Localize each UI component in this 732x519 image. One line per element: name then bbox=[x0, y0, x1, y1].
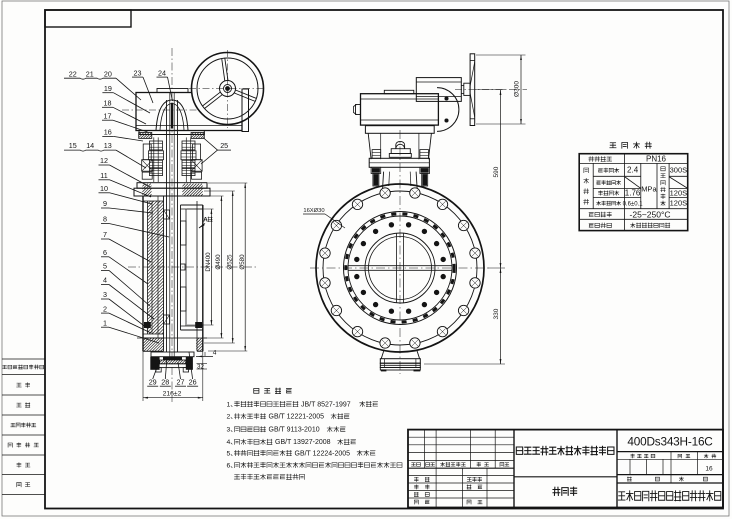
svg-text:16: 16 bbox=[705, 465, 713, 472]
svg-text:400Ds343H-16C: 400Ds343H-16C bbox=[627, 435, 713, 449]
svg-text:1、: 1、 bbox=[227, 401, 238, 408]
svg-text:Ø300: Ø300 bbox=[513, 81, 520, 97]
svg-text:0.6±0.1: 0.6±0.1 bbox=[623, 201, 644, 207]
svg-text:15: 15 bbox=[69, 141, 77, 150]
svg-text:590: 590 bbox=[493, 166, 500, 177]
svg-text:9: 9 bbox=[103, 199, 107, 208]
svg-text:25: 25 bbox=[220, 141, 228, 150]
svg-text:300S: 300S bbox=[670, 166, 688, 175]
svg-text:DN400: DN400 bbox=[205, 252, 212, 272]
svg-text:4: 4 bbox=[213, 350, 217, 357]
svg-text:A: A bbox=[203, 217, 208, 224]
svg-text:GB/T 13927-2008: GB/T 13927-2008 bbox=[275, 439, 331, 446]
svg-text:216±2: 216±2 bbox=[163, 390, 182, 397]
svg-text:13: 13 bbox=[104, 141, 112, 150]
svg-text:Ø525: Ø525 bbox=[227, 254, 234, 270]
svg-text:MPa: MPa bbox=[641, 185, 657, 194]
svg-text:2: 2 bbox=[103, 304, 107, 313]
svg-text:Ø490: Ø490 bbox=[215, 254, 222, 270]
svg-text:Ø580: Ø580 bbox=[239, 254, 246, 270]
svg-text:GB/T 12224-2005: GB/T 12224-2005 bbox=[295, 450, 351, 457]
svg-text:32: 32 bbox=[197, 363, 204, 370]
svg-text:3: 3 bbox=[103, 290, 107, 299]
svg-text:10: 10 bbox=[100, 184, 108, 193]
svg-text:16: 16 bbox=[104, 128, 112, 137]
svg-text:5: 5 bbox=[103, 262, 107, 271]
svg-text:14: 14 bbox=[86, 141, 94, 150]
svg-text:3、: 3、 bbox=[227, 427, 238, 434]
svg-text:20: 20 bbox=[104, 69, 112, 78]
svg-text:GB/T 9113-2010: GB/T 9113-2010 bbox=[269, 427, 320, 434]
svg-text:-25~250°C: -25~250°C bbox=[630, 209, 671, 219]
svg-text:4: 4 bbox=[103, 276, 107, 285]
svg-text:2.4: 2.4 bbox=[627, 166, 639, 175]
svg-text:4、: 4、 bbox=[227, 439, 238, 446]
svg-text:24: 24 bbox=[158, 68, 166, 77]
svg-text:120S: 120S bbox=[670, 199, 688, 208]
svg-text:18: 18 bbox=[104, 99, 112, 108]
svg-text:16XØ30: 16XØ30 bbox=[303, 208, 324, 214]
svg-text:19: 19 bbox=[104, 84, 112, 93]
svg-text:6: 6 bbox=[103, 248, 107, 257]
svg-text:21: 21 bbox=[86, 69, 94, 78]
svg-text:11: 11 bbox=[100, 171, 107, 180]
svg-text:JB/T 8527-1997: JB/T 8527-1997 bbox=[301, 401, 351, 408]
svg-text:PN16: PN16 bbox=[646, 154, 667, 163]
svg-text:GB/T 12221-2005: GB/T 12221-2005 bbox=[269, 414, 325, 421]
svg-text:17: 17 bbox=[104, 111, 112, 120]
svg-text:6、: 6、 bbox=[227, 462, 238, 469]
svg-text:12: 12 bbox=[100, 156, 108, 165]
svg-text:22: 22 bbox=[69, 69, 77, 78]
svg-text:120S: 120S bbox=[670, 188, 688, 197]
svg-text:1.76: 1.76 bbox=[625, 188, 641, 197]
svg-text:330: 330 bbox=[493, 308, 500, 319]
svg-text:1: 1 bbox=[103, 318, 107, 327]
svg-text:23: 23 bbox=[134, 68, 142, 77]
svg-text:7: 7 bbox=[103, 230, 107, 239]
svg-text:8: 8 bbox=[103, 215, 107, 224]
